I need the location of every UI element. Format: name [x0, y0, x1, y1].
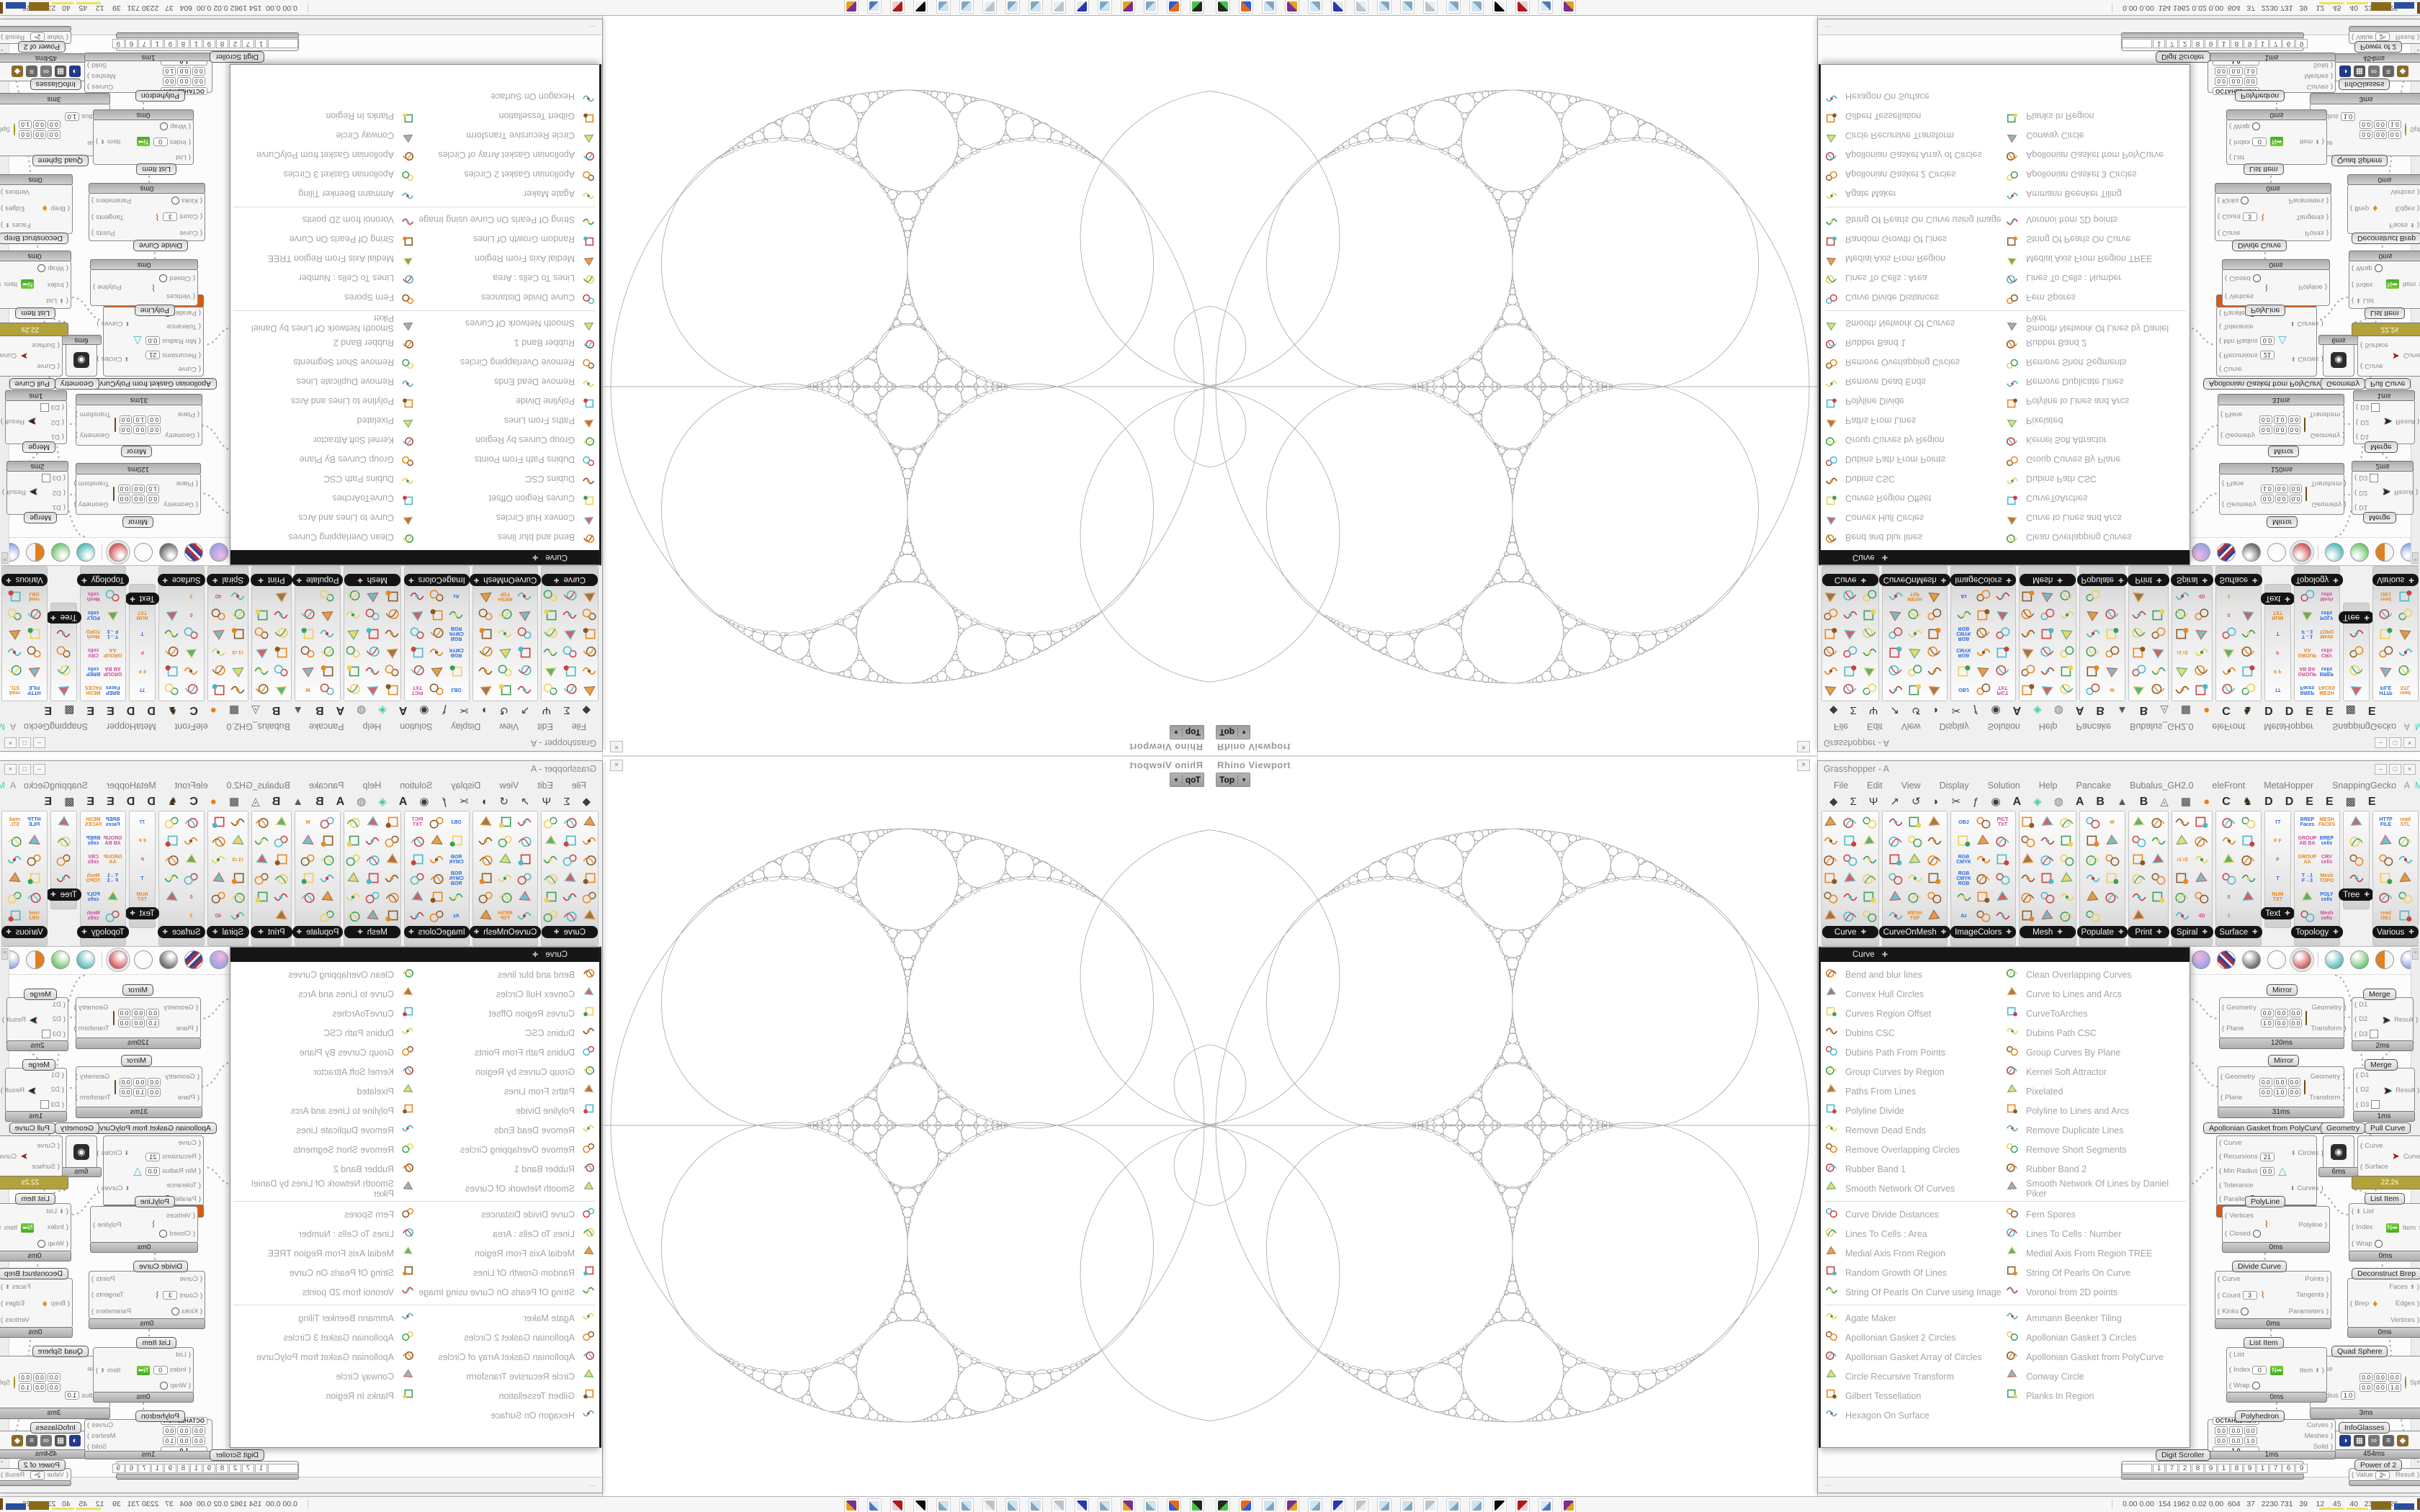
taskbar-icon-notepad[interactable]	[1028, 1498, 1043, 1512]
palette-icon[interactable]: T→1 F→3	[2299, 625, 2316, 642]
palette-icon[interactable]	[542, 851, 559, 868]
palette-icon[interactable]: 4D	[2193, 907, 2210, 924]
palette-icon[interactable]	[229, 870, 246, 887]
palette-icon[interactable]: 4D	[210, 907, 227, 924]
component-label-geometry[interactable]: Geometry	[2321, 378, 2365, 390]
palette-icon[interactable]	[300, 644, 317, 661]
component-list-item[interactable]: (⬇List(Index(WrapN➡Item⬆)	[2349, 260, 2420, 309]
taskbar-icon-notepad[interactable]	[1446, 0, 1461, 14]
component-label-divide-curve[interactable]: Divide Curve	[2232, 240, 2287, 251]
palette-icon[interactable]	[2104, 851, 2121, 868]
dropdown-item[interactable]: Smooth Network Of Curves	[414, 315, 595, 332]
plane-value[interactable]: 0.0	[178, 78, 191, 86]
palette-icon[interactable]: RGB CMYK RGB	[1955, 625, 1973, 642]
palette-icon[interactable]	[344, 832, 362, 850]
palette-icon[interactable]	[1887, 662, 1904, 680]
component-pull-curve[interactable]: (Curve(Surface➤Curve)	[0, 335, 63, 377]
port-transform[interactable]: Transform)	[2309, 410, 2344, 418]
palette-icon[interactable]	[2348, 870, 2365, 887]
component-geometry[interactable]: ◉	[2323, 343, 2354, 377]
dropdown-item[interactable]: Remove Duplicate Lines	[2006, 374, 2187, 390]
port-circles[interactable]: ⬇Circles)	[2291, 355, 2323, 363]
palette-tab-populate[interactable]: Populate✚	[2077, 926, 2128, 938]
port-value[interactable]: (Value2ⁿ	[2352, 33, 2390, 42]
port-d2[interactable]: (D2	[51, 1086, 64, 1094]
palette-icon[interactable]	[429, 681, 446, 698]
menu-help[interactable]: Help	[2039, 780, 2058, 791]
sigma-icon[interactable]: Σ	[1850, 795, 1857, 809]
palette-icon[interactable]	[26, 606, 43, 624]
port-geometry[interactable]: (Geometry	[163, 500, 198, 508]
dropdown-item[interactable]: Agate Maker	[414, 1310, 595, 1326]
menu-mantis[interactable]: Mantis	[0, 780, 5, 791]
palette-icon[interactable]	[300, 606, 317, 624]
palette-icon[interactable]	[1861, 606, 1878, 624]
palette-icon[interactable]: PICT TXT	[1994, 814, 2012, 831]
plane-value[interactable]: 0.0	[118, 485, 131, 493]
palette-icon[interactable]: read STL	[2397, 681, 2414, 698]
dotgrid-icon[interactable]: ▩	[64, 703, 74, 717]
palette-icon[interactable]	[561, 644, 578, 661]
palette-icon[interactable]	[55, 832, 73, 850]
palette-icon[interactable]	[383, 814, 400, 831]
palette-icon[interactable]	[1887, 625, 1904, 642]
dropdown-item[interactable]: Bend and blur lines	[414, 966, 595, 983]
dropdown-item[interactable]: Group Curves by Region	[1825, 432, 2006, 449]
palette-icon[interactable]	[55, 870, 73, 887]
gem-icon[interactable]: ◈	[378, 795, 387, 809]
port-transform[interactable]: Transform)	[76, 410, 111, 418]
port-meshes[interactable]: Meshes)	[87, 1432, 115, 1440]
palette-tab-print[interactable]: Print✚	[251, 574, 292, 586]
plane-value[interactable]: 0.0	[2359, 1383, 2372, 1392]
dropdown-item[interactable]: Dubins Path From Points	[1825, 1044, 2006, 1061]
port-closed[interactable]: (Closed	[2225, 274, 2261, 282]
palette-icon[interactable]	[2130, 681, 2148, 698]
palette-icon[interactable]	[1822, 681, 1839, 698]
palette-icon[interactable]	[2130, 870, 2148, 887]
palette-icon[interactable]	[6, 851, 24, 868]
plane-value[interactable]: 0.0	[118, 1019, 131, 1027]
component-label-list-item[interactable]: List Item	[15, 1193, 55, 1205]
taskbar-icon-notepad[interactable]	[1308, 1498, 1322, 1512]
palette-icon[interactable]	[210, 832, 227, 850]
favorite-A[interactable]: A	[2013, 703, 2022, 717]
port-min radius[interactable]: (Min Radius0.0	[2219, 1167, 2275, 1176]
palette-icon[interactable]	[1975, 625, 1992, 642]
port-solid[interactable]: Solid)	[87, 62, 107, 70]
port-geometry[interactable]: Geometry)	[76, 431, 110, 439]
viewport-close-button[interactable]: ×	[610, 741, 623, 752]
digit-cell[interactable]: 1	[255, 1464, 267, 1473]
port-surface[interactable]: (Surface	[2360, 341, 2388, 349]
taskbar-icon-owl-purple[interactable]	[844, 1498, 859, 1512]
value-chip[interactable]: 3	[2243, 212, 2257, 221]
palette-icon[interactable]	[183, 814, 200, 831]
hexagon-icon[interactable]: ◆	[1829, 703, 1838, 717]
dropdown-item[interactable]: Apollonian Gasket 3 Circles	[233, 1329, 414, 1346]
port-curve[interactable]: Curve)	[2403, 352, 2420, 360]
palette-icon[interactable]	[2058, 644, 2076, 661]
menu-solution[interactable]: Solution	[1988, 722, 2020, 732]
value-chip[interactable]: 21	[145, 351, 160, 360]
component-label-list-item[interactable]: List Item	[15, 307, 55, 319]
palette-icon[interactable]	[2020, 588, 2037, 605]
dropdown-item[interactable]: String Of Pearls On Curve using Image	[1825, 1284, 2006, 1300]
menu-elefront[interactable]: eleFront	[2212, 780, 2245, 791]
dropdown-item[interactable]: Bend and blur lines	[414, 529, 595, 546]
menu-help[interactable]: Help	[363, 722, 382, 732]
digit-cell[interactable]: 9	[112, 1464, 125, 1473]
palette-icon[interactable]	[429, 662, 446, 680]
dropdown-item[interactable]: Apollonian Gasket 3 Circles	[2006, 166, 2187, 183]
palette-icon[interactable]	[478, 851, 495, 868]
toggle-circle[interactable]	[2241, 1308, 2249, 1315]
menu-edit[interactable]: Edit	[1867, 780, 1883, 791]
palette-icon[interactable]	[2104, 662, 2121, 680]
palette-icon[interactable]	[1822, 814, 1839, 831]
digit-cell[interactable]	[268, 40, 298, 49]
taskbar-icon-owl-purple[interactable]	[1561, 1498, 1576, 1512]
digit-cell[interactable]: 2	[229, 1464, 241, 1473]
plane-value[interactable]: 0.0	[48, 1383, 60, 1392]
dropdown-item[interactable]: Apollonian Gasket from PolyCurve	[233, 147, 414, 163]
component-label-mirror[interactable]: Mirror	[2268, 1055, 2299, 1066]
menu-snappinggecko[interactable]: SnappingGecko	[24, 722, 88, 732]
palette-icon[interactable]	[2084, 606, 2102, 624]
digit-cell[interactable]: 9	[164, 1464, 176, 1473]
value-chip[interactable]: 2ⁿ	[2375, 33, 2390, 42]
component-label-mirror[interactable]: Mirror	[2267, 984, 2298, 996]
dropdown-item[interactable]: Group Curves by Region	[1825, 1063, 2006, 1080]
favorite-D[interactable]: D	[2285, 703, 2294, 717]
dropdown-item[interactable]: Convex Hull Circles	[414, 986, 595, 1002]
palette-icon[interactable]	[2150, 851, 2167, 868]
port-transform[interactable]: Transform)	[74, 480, 109, 487]
component-label-list-item[interactable]: List Item	[2244, 163, 2284, 175]
palette-icon[interactable]	[319, 814, 336, 831]
digit-cell[interactable]: 8	[216, 1464, 228, 1473]
palette-icon[interactable]	[229, 681, 246, 698]
component-label-geometry[interactable]: Geometry	[55, 1122, 99, 1134]
dropdown-item[interactable]: Conway Circle	[233, 127, 414, 144]
palette-icon[interactable]: OBJ	[1955, 814, 1973, 831]
digit-cell[interactable]: 7	[242, 1464, 254, 1473]
toggle-circle[interactable]	[2252, 122, 2260, 130]
tree-icon[interactable]: Ψ	[542, 795, 552, 809]
palette-icon[interactable]	[2174, 832, 2191, 850]
palette-icon[interactable]	[383, 907, 400, 924]
palette-tab-curveonmesh[interactable]: CurveOnMesh✚	[470, 574, 542, 586]
toggle-circle[interactable]	[37, 1240, 45, 1248]
component-merge[interactable]: (D1(D2(D3➤Result)	[5, 400, 67, 444]
port-surface[interactable]: (Surface	[32, 1163, 60, 1171]
palette-icon[interactable]	[2174, 681, 2191, 698]
palette-icon[interactable]	[516, 588, 534, 605]
dropdown-item[interactable]: Polyline to Lines and Arcs	[2006, 393, 2187, 410]
dropdown-item[interactable]: Pixelated	[233, 413, 414, 429]
palette-icon[interactable]: PICT TXT	[1994, 681, 2012, 698]
component-merge[interactable]: (D1(D2(D3➤Result)	[6, 997, 68, 1042]
dropdown-item[interactable]: Dubins CSC	[1825, 1025, 2006, 1041]
favorite-B[interactable]: B	[2140, 795, 2148, 809]
palette-icon[interactable]	[163, 832, 181, 850]
port-d3[interactable]: (D3	[2354, 474, 2378, 482]
palette-icon[interactable]	[2150, 681, 2167, 698]
dropdown-item[interactable]: Kernel Soft Attractor	[2006, 1063, 2187, 1080]
palette-icon[interactable]	[478, 644, 495, 661]
component-merge[interactable]: (D1(D2(D3➤Result)	[2353, 1068, 2415, 1112]
port-kinks[interactable]: (Kinks	[171, 1308, 202, 1315]
maximize-button[interactable]: □	[19, 764, 31, 775]
favorite-C[interactable]: C	[189, 703, 198, 717]
palette-icon[interactable]: PICT TXT	[409, 814, 426, 831]
palette-icon[interactable]	[1926, 851, 1943, 868]
dropdown-item[interactable]: Hexagon On Surface	[1825, 1407, 2006, 1423]
palette-icon[interactable]	[2039, 907, 2056, 924]
palette-icon[interactable]	[364, 851, 381, 868]
palette-icon[interactable]	[2058, 832, 2076, 850]
palette-icon[interactable]	[383, 870, 400, 887]
port-vertices[interactable]: (Vertices	[166, 292, 195, 300]
palette-icon[interactable]: r1 r2	[2174, 851, 2191, 868]
port-result[interactable]: Result)	[2, 489, 26, 497]
palette-icon[interactable]: 4D	[2193, 588, 2210, 605]
palette-icon[interactable]	[2039, 870, 2056, 887]
palette-icon[interactable]	[409, 851, 426, 868]
port-d3[interactable]: (D3	[40, 403, 64, 412]
close-button[interactable]: ×	[2403, 737, 2416, 748]
arrow-icon[interactable]: ↗	[1890, 795, 1899, 809]
taskbar-icon-notepad[interactable]	[1262, 0, 1276, 14]
port-curves[interactable]: ⬇Curves)	[97, 1184, 130, 1192]
palette-icon[interactable]	[1926, 888, 1943, 906]
dropdown-item[interactable]: Apollonian Gasket from PolyCurve	[2006, 1349, 2187, 1365]
dropdown-item[interactable]: Remove Short Segments	[233, 354, 414, 371]
palette-icon[interactable]: BREP Faces	[2299, 814, 2316, 831]
palette-icon[interactable]	[2084, 870, 2102, 887]
palette-icon[interactable]	[561, 888, 578, 906]
port-result[interactable]: Result)	[1, 33, 24, 41]
palette-icon[interactable]: F	[2269, 644, 2287, 661]
port-d1[interactable]: (D1	[2354, 503, 2367, 511]
palette-icon[interactable]	[1861, 588, 1878, 605]
toggle-circle[interactable]	[2375, 264, 2383, 272]
port-result[interactable]: Result)	[2396, 418, 2419, 426]
digit-cell[interactable]: 7	[138, 1464, 151, 1473]
palette-icon[interactable]	[497, 832, 514, 850]
port-count[interactable]: (Count3	[163, 212, 202, 221]
palette-icon[interactable]: F F	[134, 832, 151, 850]
plane-value[interactable]: 0.0	[2374, 1383, 2387, 1392]
palette-icon[interactable]	[2039, 606, 2056, 624]
palette-icon[interactable]	[319, 851, 336, 868]
dropdown-item[interactable]: Apollonian Gasket 2 Circles	[1825, 166, 2006, 183]
component-label-merge[interactable]: Merge	[22, 1059, 55, 1071]
loop-icon[interactable]: ↺	[1912, 703, 1921, 717]
dropdown-item[interactable]: Smooth Network Of Curves	[414, 1180, 595, 1197]
digit-cell[interactable]: 6	[125, 1464, 138, 1473]
plane-value[interactable]: 0.0	[133, 426, 146, 434]
dropdown-item[interactable]: Random Growth Of Lines	[1825, 231, 2006, 248]
palette-tab-imagecolors[interactable]: ImageColors✚	[1950, 926, 2016, 938]
palette-icon[interactable]	[210, 888, 227, 906]
palette-icon[interactable]	[2130, 644, 2148, 661]
port-curves[interactable]: ⬇Curves)	[97, 320, 130, 328]
palette-icon[interactable]	[448, 832, 465, 850]
palette-tab-text[interactable]: Text✚	[125, 593, 159, 605]
component-label-pull-curve[interactable]: Pull Curve	[9, 378, 55, 390]
minimize-button[interactable]: –	[33, 764, 45, 775]
port-vertices[interactable]: Vertices)	[1, 189, 30, 197]
palette-icon[interactable]: MESH TSP	[497, 907, 514, 924]
favorite-C[interactable]: C	[189, 795, 198, 809]
close-button[interactable]: ×	[2403, 764, 2416, 775]
palette-icon[interactable]	[581, 888, 598, 906]
port-list[interactable]: (⬇List	[46, 297, 68, 305]
arrow-icon[interactable]: ↗	[521, 795, 530, 809]
palette-icon[interactable]: GROUP AB BA	[104, 662, 122, 680]
sigma-icon[interactable]: Σ	[563, 703, 570, 717]
digit-cell[interactable]: 1	[190, 40, 202, 49]
component-label-merge[interactable]: Merge	[24, 989, 57, 1000]
port-transform[interactable]: Transform)	[74, 1025, 109, 1032]
dropdown-item[interactable]: Paths From Lines	[414, 1083, 595, 1099]
palette-icon[interactable]	[183, 681, 200, 698]
palette-tab-various[interactable]: Various✚	[2372, 926, 2419, 938]
palette-icon[interactable]	[364, 814, 381, 831]
port-wrap[interactable]: (Wrap	[2229, 122, 2260, 130]
taskbar-icon-notepad[interactable]	[1377, 0, 1391, 14]
value-chip[interactable]: 0	[2252, 138, 2267, 146]
component-mirror[interactable]: (Geometry(Plane0.00.00.00.01.00.0Geometr…	[76, 404, 202, 446]
palette-icon[interactable]	[2348, 851, 2365, 868]
palette-icon[interactable]: 77	[134, 814, 151, 831]
palette-icon[interactable]	[2348, 814, 2365, 831]
palette-icon[interactable]	[2084, 851, 2102, 868]
palette-icon[interactable]	[2220, 851, 2238, 868]
menu-right-a[interactable]: A	[2404, 722, 2410, 732]
component-merge[interactable]: (D1(D2(D3➤Result)	[2352, 997, 2414, 1042]
taskbar-icon-window-blue[interactable]	[867, 0, 882, 14]
palette-icon[interactable]	[2378, 851, 2395, 868]
port-plane[interactable]: (Plane	[178, 410, 200, 418]
component-label-list-item[interactable]: List Item	[2365, 1193, 2405, 1205]
menu-snappinggecko[interactable]: SnappingGecko	[2332, 722, 2396, 732]
palette-icon[interactable]	[1926, 907, 1943, 924]
taskbar-icon-notepad[interactable]	[1262, 1498, 1276, 1512]
palette-icon[interactable]	[409, 888, 426, 906]
mountain-icon[interactable]: ▲	[292, 703, 303, 717]
plane-value[interactable]: 1.0	[163, 68, 176, 76]
palette-icon[interactable]: NUM TXT	[2269, 888, 2287, 906]
port-d2[interactable]: (D2	[53, 489, 66, 497]
palette-icon[interactable]	[6, 662, 24, 680]
palette-icon[interactable]	[2174, 870, 2191, 887]
component-mirror[interactable]: (Geometry(Plane0.00.00.00.01.00.0Geometr…	[2218, 1066, 2344, 1108]
taskbar-icon-notepad[interactable]	[1400, 0, 1415, 14]
port-recursions[interactable]: (Recursions21	[145, 351, 201, 360]
component-digit-scroller[interactable]: 172891891769	[2121, 37, 2304, 51]
palette-icon[interactable]: GROUP AA	[104, 851, 122, 868]
viewport-close-button[interactable]: ×	[610, 760, 623, 771]
port-vertices[interactable]: (Vertices	[2225, 1212, 2254, 1220]
palette-icon[interactable]	[229, 625, 246, 642]
palette-icon[interactable]	[183, 870, 200, 887]
palette-tab-tree[interactable]: Tree✚	[2339, 611, 2374, 624]
palette-icon[interactable]	[300, 851, 317, 868]
plane-value[interactable]: 0.0	[192, 68, 205, 76]
dropdown-item[interactable]: String Of Pearls On Curve	[233, 231, 414, 248]
palette-icon[interactable]	[1926, 814, 1943, 831]
palette-icon[interactable]	[1822, 888, 1839, 906]
palette-icon[interactable]: 4D	[210, 588, 227, 605]
plane-value[interactable]: 0.0	[148, 1088, 161, 1097]
dropdown-item[interactable]: Dubins Path From Points	[414, 451, 595, 468]
palette-icon[interactable]	[1975, 681, 1992, 698]
palette-icon[interactable]: 3	[2220, 907, 2238, 924]
port-geometry[interactable]: (Geometry	[165, 1073, 200, 1081]
port-curve[interactable]: (Curve	[178, 1139, 201, 1147]
palette-icon[interactable]	[542, 814, 559, 831]
port-d1[interactable]: (D1	[53, 503, 66, 511]
palette-icon[interactable]	[6, 888, 24, 906]
component-label-quad-sphere[interactable]: Quad Sphere	[2331, 1346, 2388, 1357]
port-sphere[interactable]: Sphere)	[0, 1379, 10, 1387]
plane-value[interactable]: 0.0	[120, 1078, 133, 1086]
port-edges[interactable]: Edges)	[1, 205, 24, 213]
eye-icon[interactable]: ◉	[419, 795, 429, 809]
taskbar-icon-notepad[interactable]	[936, 0, 951, 14]
palette-icon[interactable]: Az	[1955, 588, 1973, 605]
palette-icon[interactable]	[2020, 851, 2037, 868]
palette-icon[interactable]	[2150, 644, 2167, 661]
port-curve[interactable]: (Curve	[178, 366, 201, 374]
palette-icon[interactable]	[1926, 662, 1943, 680]
palette-icon[interactable]	[300, 625, 317, 642]
palette-icon[interactable]	[2240, 888, 2257, 906]
palette-icon[interactable]	[163, 888, 181, 906]
component-mirror[interactable]: (Geometry(Plane0.00.00.01.00.00.0Geometr…	[2219, 997, 2344, 1039]
port-list[interactable]: (⬇List	[46, 1207, 68, 1215]
palette-icon[interactable]	[2397, 888, 2414, 906]
taskbar-icon-notepad[interactable]	[1144, 1498, 1158, 1512]
palette-icon[interactable]	[2174, 625, 2191, 642]
palette-icon[interactable]	[272, 588, 290, 605]
palette-icon[interactable]	[1994, 662, 2012, 680]
palette-icon[interactable]	[516, 814, 534, 831]
component-label-quad-sphere[interactable]: Quad Sphere	[32, 1346, 89, 1357]
taskbar-icon-script[interactable]	[1052, 0, 1066, 14]
dropdown-item[interactable]: Planks In Region	[233, 108, 414, 125]
palette-icon[interactable]: r1 r2	[229, 851, 246, 868]
grasshopper-titlebar[interactable]: Grasshopper - A –□×	[1818, 761, 2420, 777]
dropdown-item[interactable]: Dubins Path From Points	[414, 1044, 595, 1061]
port-value[interactable]: (Value2ⁿ	[30, 33, 68, 42]
palette-icon[interactable]: GROUP AA	[2299, 851, 2316, 868]
script-icon[interactable]: ƒ	[441, 795, 447, 809]
digit-cell[interactable]: 1	[2153, 1464, 2165, 1473]
port-d2[interactable]: (D2	[51, 418, 64, 426]
palette-icon[interactable]: MESH FACES	[2318, 681, 2336, 698]
plane-value[interactable]: 0.0	[2288, 415, 2301, 424]
palette-icon[interactable]	[163, 606, 181, 624]
component-label-pull-curve[interactable]: Pull Curve	[9, 1122, 55, 1134]
dot-icon[interactable]: ●	[210, 795, 217, 809]
value-chip[interactable]: 0.0	[145, 337, 161, 346]
palette-icon[interactable]	[2058, 814, 2076, 831]
palette-icon[interactable]	[210, 870, 227, 887]
